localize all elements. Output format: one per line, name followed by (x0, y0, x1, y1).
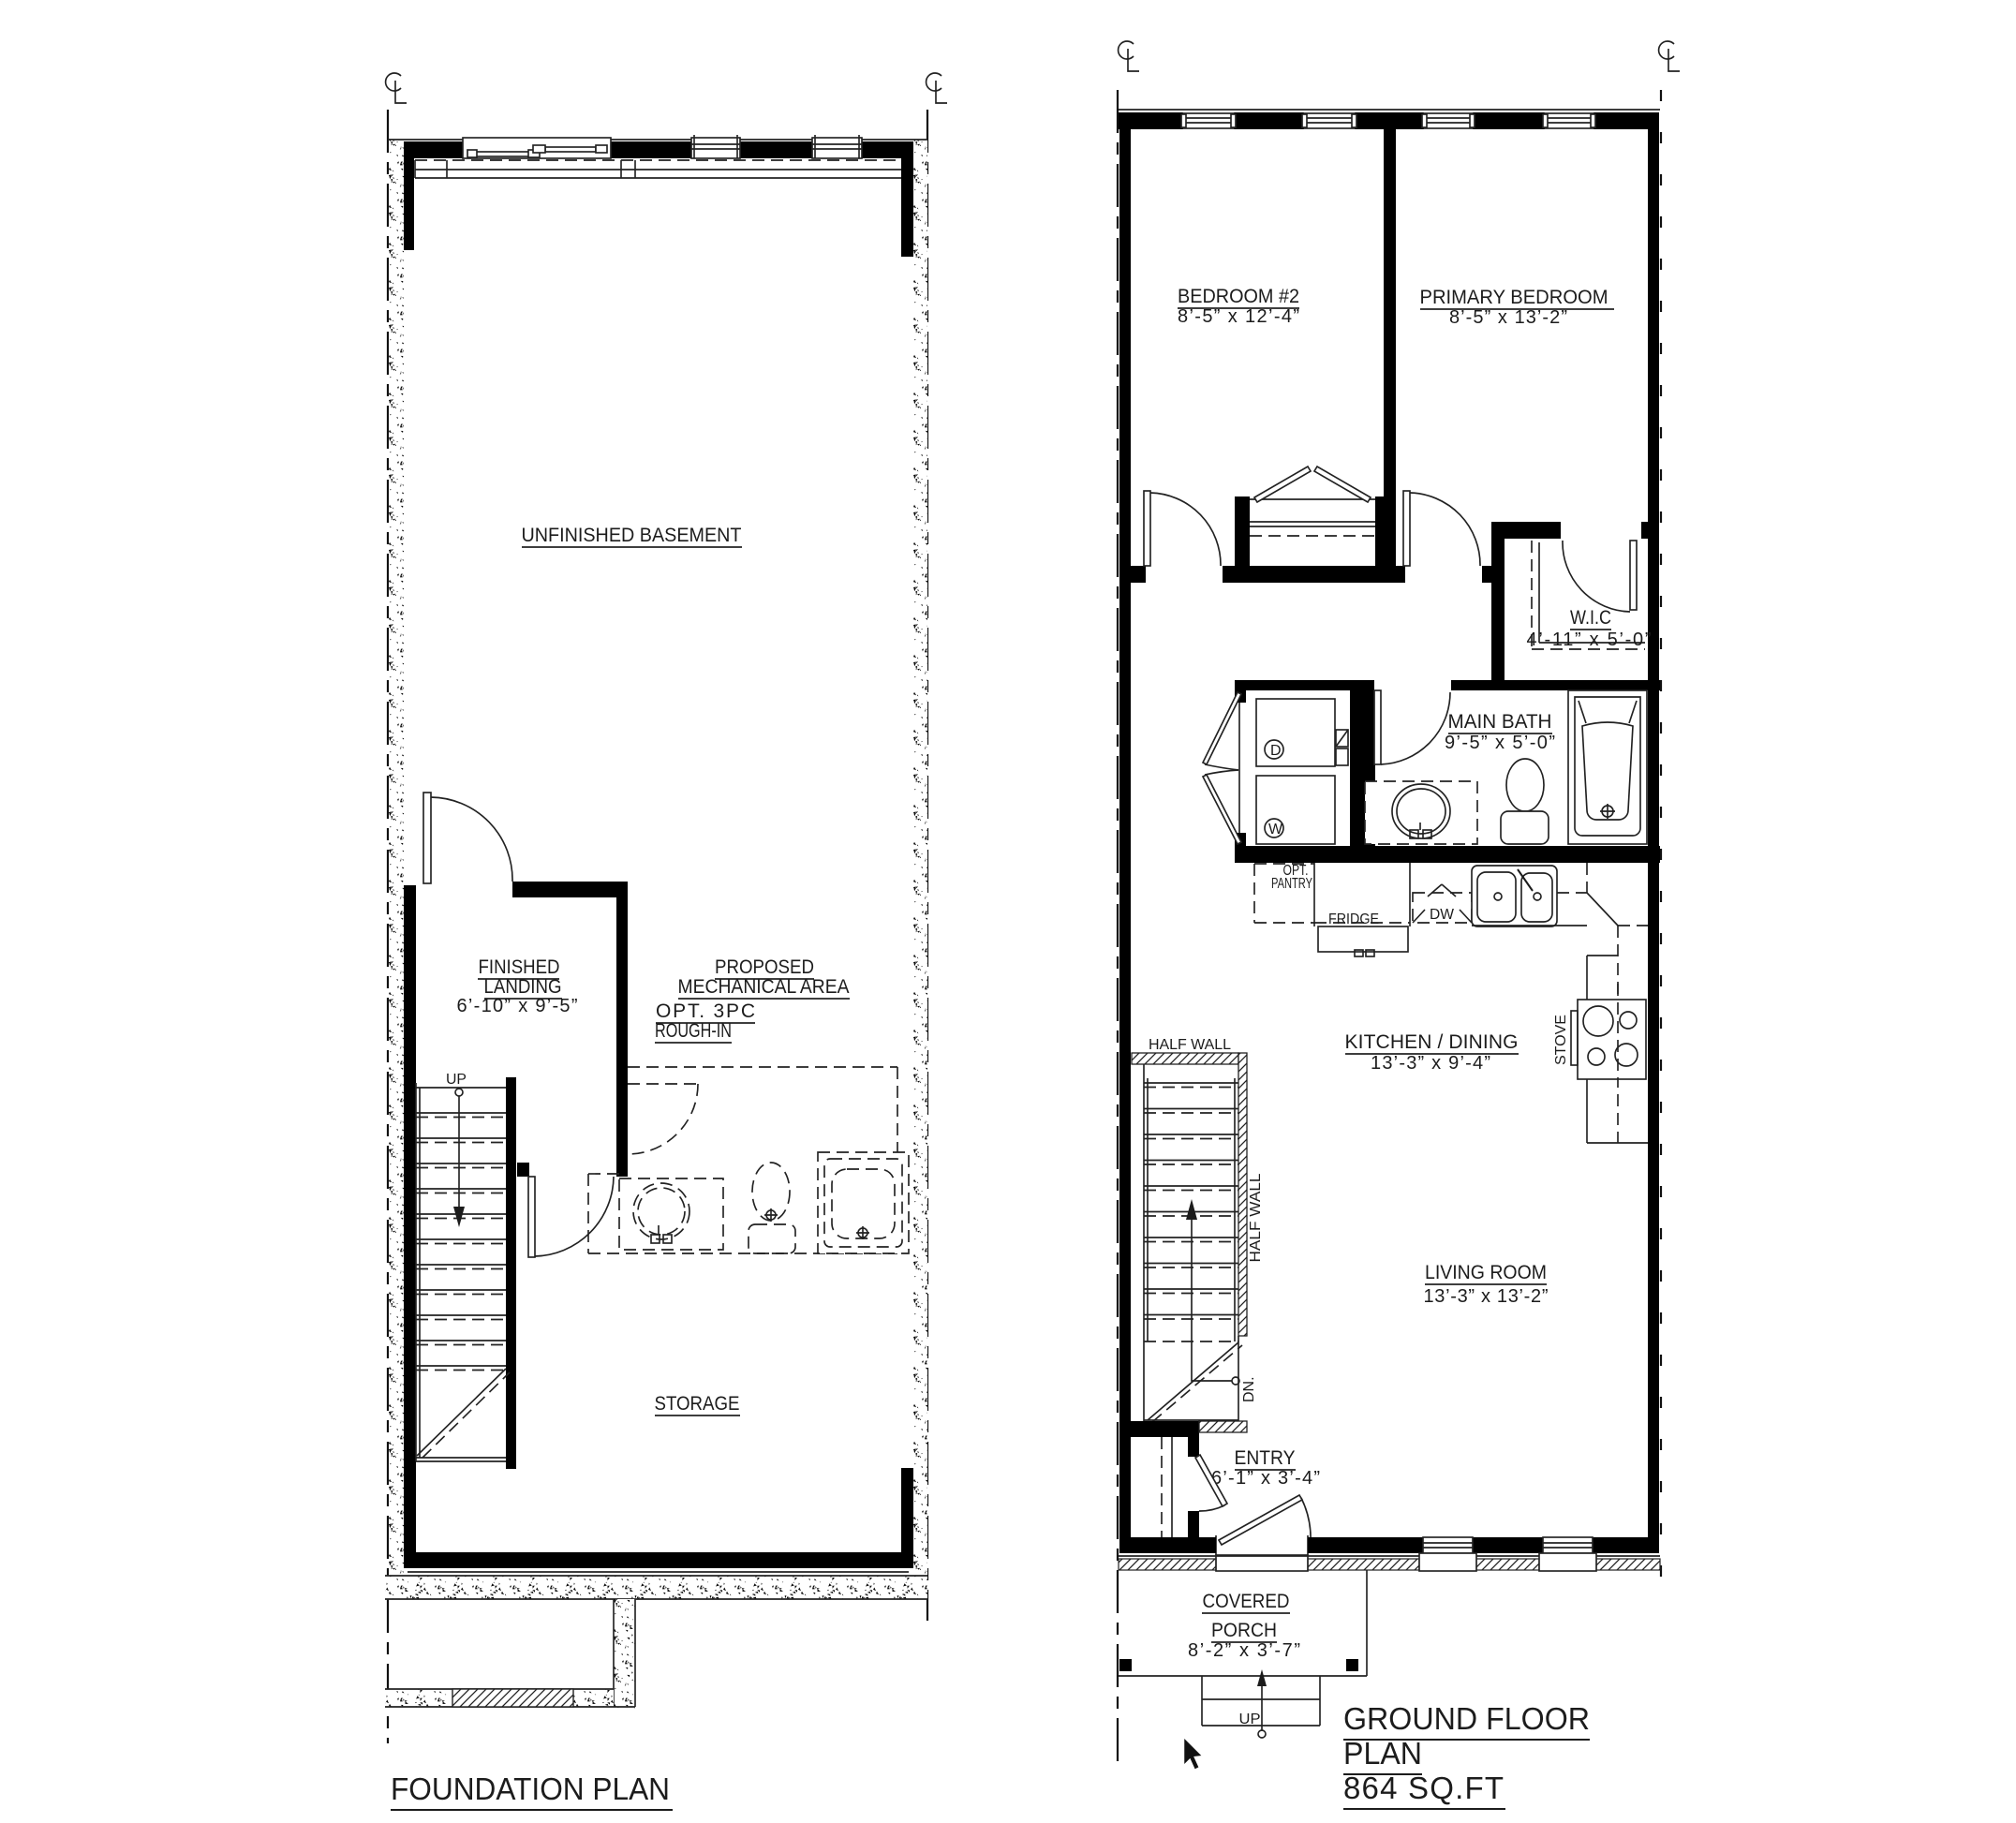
svg-text:PANTRY: PANTRY (1271, 876, 1312, 892)
svg-text:COVERED: COVERED (1203, 1591, 1290, 1612)
svg-text:ROUGH-IN: ROUGH-IN (655, 1020, 732, 1042)
svg-text:HALF WALL: HALF WALL (1248, 1173, 1264, 1262)
svg-text:8’-5” x 12’-4”: 8’-5” x 12’-4” (1178, 306, 1299, 327)
svg-text:864 SQ.FT: 864 SQ.FT (1343, 1771, 1504, 1805)
svg-text:FOUNDATION PLAN: FOUNDATION PLAN (391, 1771, 670, 1806)
svg-text:13’-3” x 13’-2”: 13’-3” x 13’-2” (1424, 1286, 1549, 1307)
svg-text:4’-11” x 5’-0”: 4’-11” x 5’-0” (1527, 630, 1652, 650)
svg-text:LANDING: LANDING (484, 976, 562, 998)
svg-text:UP: UP (1239, 1712, 1261, 1727)
svg-text:STORAGE: STORAGE (655, 1393, 740, 1415)
svg-text:8’-5” x 13’-2”: 8’-5” x 13’-2” (1449, 307, 1567, 328)
svg-text:W.I.C: W.I.C (1570, 607, 1611, 629)
svg-text:PROPOSED: PROPOSED (715, 956, 814, 978)
svg-text:PLAN: PLAN (1343, 1736, 1422, 1771)
svg-text:KITCHEN / DINING: KITCHEN / DINING (1345, 1031, 1519, 1053)
svg-text:UP: UP (446, 1072, 467, 1088)
svg-text:FRIDGE: FRIDGE (1328, 911, 1379, 927)
svg-text:PRIMARY BEDROOM: PRIMARY BEDROOM (1420, 287, 1608, 308)
svg-text:PORCH: PORCH (1211, 1620, 1277, 1641)
svg-text:6’-1” x 3’-4”: 6’-1” x 3’-4” (1211, 1468, 1320, 1489)
svg-text:DN.: DN. (1241, 1376, 1257, 1402)
svg-text:DW: DW (1430, 907, 1455, 923)
svg-text:W: W (1268, 822, 1283, 837)
svg-text:STOVE: STOVE (1553, 1015, 1569, 1065)
svg-text:GROUND FLOOR: GROUND FLOOR (1343, 1701, 1590, 1736)
svg-text:FINISHED: FINISHED (479, 956, 560, 978)
svg-text:9’-5” x 5’-0”: 9’-5” x 5’-0” (1445, 733, 1555, 753)
svg-text:8’-2” x 3’-7”: 8’-2” x 3’-7” (1188, 1640, 1300, 1661)
svg-text:MAIN BATH: MAIN BATH (1448, 711, 1552, 733)
svg-text:UNFINISHED BASEMENT: UNFINISHED BASEMENT (522, 525, 742, 546)
svg-text:ENTRY: ENTRY (1235, 1447, 1296, 1469)
svg-text:D: D (1270, 743, 1282, 759)
svg-text:HALF WALL: HALF WALL (1149, 1037, 1231, 1053)
svg-text:MECHANICAL AREA: MECHANICAL AREA (678, 976, 850, 998)
svg-text:OPT. 3PC: OPT. 3PC (656, 1000, 755, 1022)
svg-text:LIVING ROOM: LIVING ROOM (1425, 1262, 1547, 1283)
svg-text:BEDROOM #2: BEDROOM #2 (1178, 286, 1299, 307)
